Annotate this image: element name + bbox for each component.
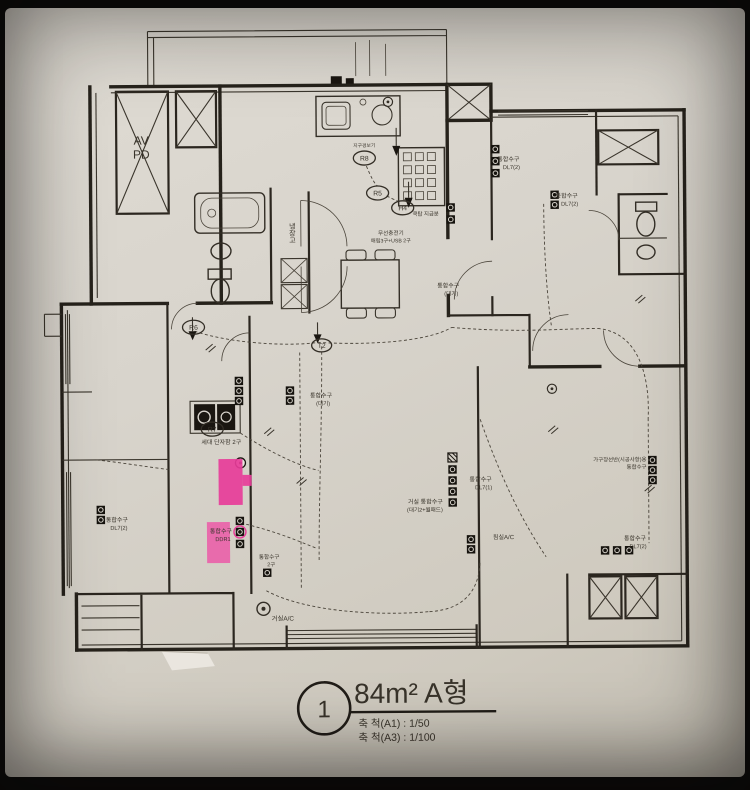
- label-outlet-hall-code: (대기): [316, 399, 330, 407]
- label-outlet-br-code: DL7(2): [629, 544, 646, 550]
- label-cooktop-note: 쿡탑 지급분: [413, 210, 439, 218]
- ref-r6: R6: [189, 325, 198, 332]
- label-outlet-entry2-code: (대기): [444, 289, 458, 297]
- label-pd: PD: [133, 148, 150, 162]
- label-outlet-2gu: 통합수구: [259, 553, 280, 561]
- label-outlet-left-code: DL7(2): [110, 526, 127, 532]
- ref-h4: H4: [398, 205, 407, 212]
- label-outlet-rt-code: DL7(2): [561, 202, 578, 208]
- paper-tear: [162, 651, 215, 670]
- label-outlet-hall2: 통합수구: [497, 155, 520, 163]
- dining-set: [341, 250, 399, 318]
- label-outlet-br: 통합수구: [624, 534, 647, 542]
- title-block: 1 84m² A형 축 척(A1) : 1/50 축 척(A3) : 1/100: [298, 677, 496, 744]
- door-swings: [171, 198, 640, 369]
- label-outlet-entry2: 통합수구: [437, 281, 460, 289]
- plan-title: 84m² A형: [354, 677, 469, 709]
- bathroom-fixtures: [195, 190, 668, 303]
- label-wireless-2: 매립3구+USB 2구: [371, 236, 411, 244]
- label-terminal-box: 세대 단자함 2구: [201, 438, 241, 446]
- plan-group: R8 R5 H4 R7 R6 T2 AV PD 냉장고 지구경보기 쿡탑 지급분…: [42, 28, 688, 746]
- label-shelf-outlet-2: 통합수구: [627, 463, 647, 471]
- label-living-outlet-1: 거실 통합수구: [408, 498, 443, 506]
- ref-r5: R5: [373, 190, 382, 197]
- outlet-symbols: [94, 95, 658, 616]
- interior-walls: [43, 83, 688, 650]
- ref-r8: R8: [360, 156, 369, 163]
- label-av: AV: [134, 134, 149, 148]
- label-bedroom-ac: 침실A/C: [493, 533, 515, 541]
- scale-a1: 축 척(A1) : 1/50: [358, 718, 430, 730]
- label-outlet-pink: 통합수구: [210, 527, 233, 535]
- label-outlet-hall2-code: DL7(2): [503, 165, 520, 171]
- plan-labels: AV PD 냉장고 지구경보기 쿡탑 지급분 무선충전기 매립3구+USB 2구…: [103, 130, 647, 624]
- windows: [64, 111, 592, 651]
- label-shelf-outlet-1: 가구장선반(시공사항)용: [593, 455, 646, 463]
- ref-r7: R7: [208, 427, 217, 434]
- label-fridge: 냉장고: [288, 222, 295, 244]
- label-wireless-1: 무선충전기: [378, 229, 404, 237]
- shaft-hatching: [116, 88, 662, 622]
- label-living-outlet-2: (대기2+월패드): [407, 506, 443, 514]
- label-outlet-rt: 통합수구: [556, 192, 579, 200]
- ref-t2: T2: [318, 343, 326, 350]
- label-outlet-pink-code: DDR1: [215, 537, 230, 543]
- scale-a3: 축 척(A3) : 1/100: [358, 732, 435, 745]
- label-living-ac: 거실A/C: [272, 614, 295, 623]
- floor-plan-drawing: R8 R5 H4 R7 R6 T2 AV PD 냉장고 지구경보기 쿡탑 지급분…: [0, 0, 750, 790]
- label-detector: 지구경보기: [353, 142, 375, 149]
- circuit-ticks: [205, 295, 654, 496]
- label-outlet-entry-code: DL7(1): [475, 485, 492, 491]
- circuit-dashed-lines: [94, 164, 649, 615]
- label-outlet-hall: 통합수구: [310, 391, 333, 399]
- pink-highlight: [206, 459, 252, 563]
- label-outlet-2gu-code: 2구: [267, 561, 275, 568]
- label-outlet-entry: 통합수구: [470, 475, 493, 483]
- label-outlet-left: 통합수구: [106, 516, 129, 524]
- title-number: 1: [317, 696, 331, 723]
- floor-plan-photo: R8 R5 H4 R7 R6 T2 AV PD 냉장고 지구경보기 쿡탑 지급분…: [0, 0, 750, 790]
- upper-balcony-lines: [147, 29, 446, 85]
